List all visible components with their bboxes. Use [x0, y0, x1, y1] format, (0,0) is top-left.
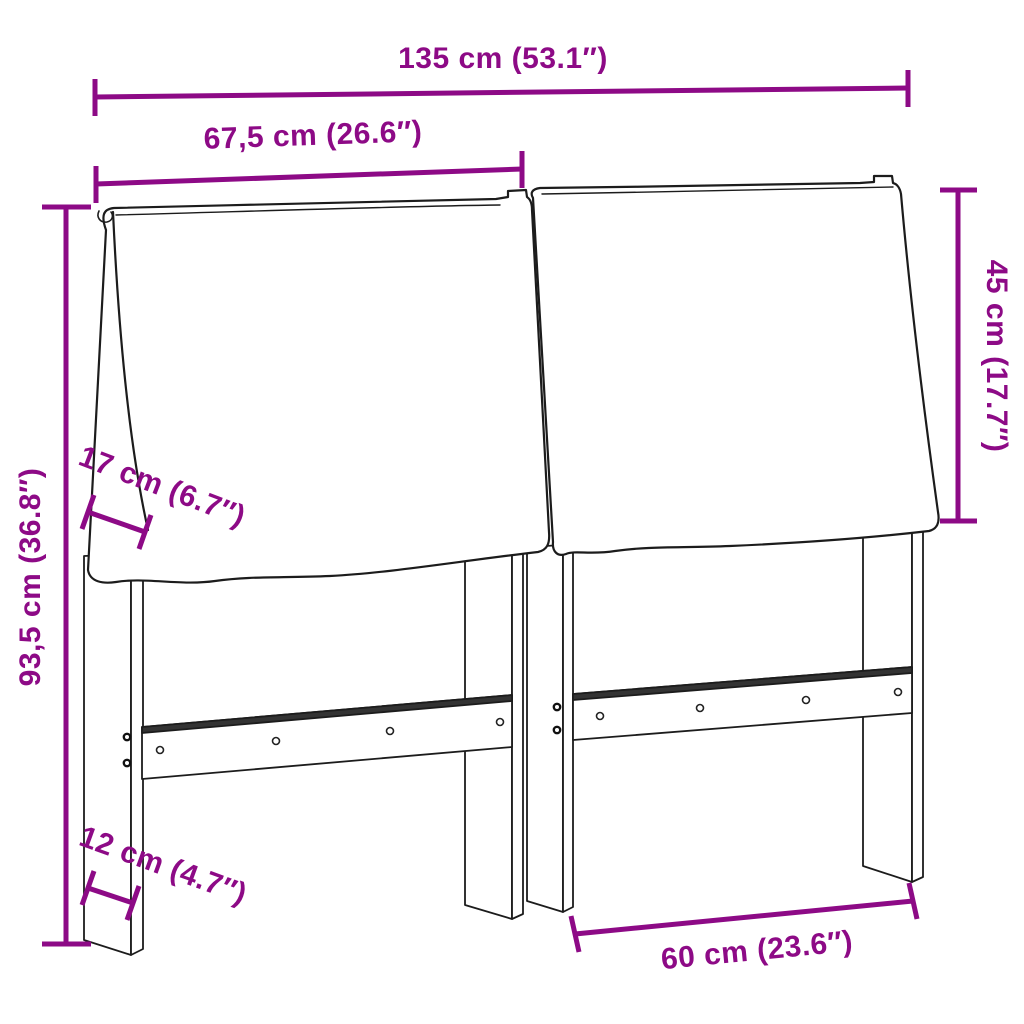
bolt	[554, 727, 560, 733]
bolt	[124, 734, 130, 740]
screw-hole	[697, 705, 704, 712]
screw-hole	[273, 738, 280, 745]
cushion-left	[88, 190, 549, 583]
screw-hole	[497, 719, 504, 726]
bolt	[554, 704, 560, 710]
dim-cushion-height	[940, 190, 977, 521]
screw-hole	[803, 697, 810, 704]
dim-label-total-height: 93,5 cm (36.8″)	[14, 468, 48, 687]
leg-mid-left-side	[512, 546, 523, 919]
screw-hole	[387, 728, 394, 735]
leg-right-side	[912, 516, 923, 882]
dimension-diagram: 135 cm (53.1″) 67,5 cm (26.6″) 45 cm (17…	[0, 0, 1024, 1024]
dim-label-total-width: 135 cm (53.1″)	[398, 42, 608, 76]
rail-left	[142, 695, 512, 779]
screw-hole	[895, 689, 902, 696]
dim-label-cushion-height: 45 cm (17.7″)	[979, 260, 1013, 453]
cushion-right	[532, 176, 939, 555]
dim-half-width	[96, 151, 522, 203]
dim-total-width	[95, 70, 908, 116]
screw-hole	[157, 747, 164, 754]
screw-hole	[597, 713, 604, 720]
leg-mid-right-side	[563, 544, 573, 912]
bolt	[124, 760, 130, 766]
